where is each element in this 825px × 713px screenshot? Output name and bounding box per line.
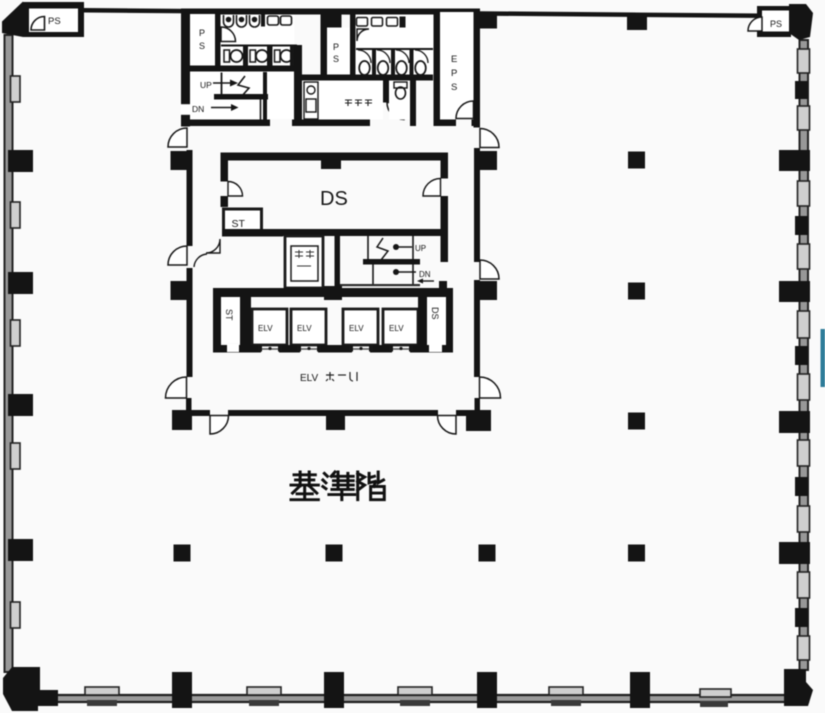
svg-text:DS: DS (320, 188, 348, 210)
svg-text:ELV: ELV (349, 324, 364, 333)
svg-text:PS: PS (48, 16, 61, 27)
svg-text:DN: DN (419, 270, 431, 279)
svg-text:DS: DS (430, 307, 440, 320)
svg-text:ELV: ELV (389, 324, 404, 333)
svg-text:S: S (333, 54, 339, 64)
svg-text:ST: ST (232, 218, 246, 230)
svg-text:ELV: ELV (297, 324, 312, 333)
svg-text:P: P (451, 68, 457, 79)
svg-text:E: E (451, 54, 457, 65)
svg-text:DN: DN (192, 104, 204, 114)
svg-text:S: S (199, 41, 205, 51)
svg-text:P: P (333, 42, 339, 52)
svg-text:ELV: ELV (300, 373, 318, 384)
svg-text:UP: UP (415, 244, 426, 253)
svg-text:ST: ST (224, 309, 234, 321)
svg-text:UP: UP (200, 80, 212, 90)
svg-text:PS: PS (770, 19, 782, 29)
svg-text:S: S (451, 82, 457, 93)
svg-text:ELV: ELV (258, 324, 273, 333)
svg-text:P: P (199, 28, 205, 38)
